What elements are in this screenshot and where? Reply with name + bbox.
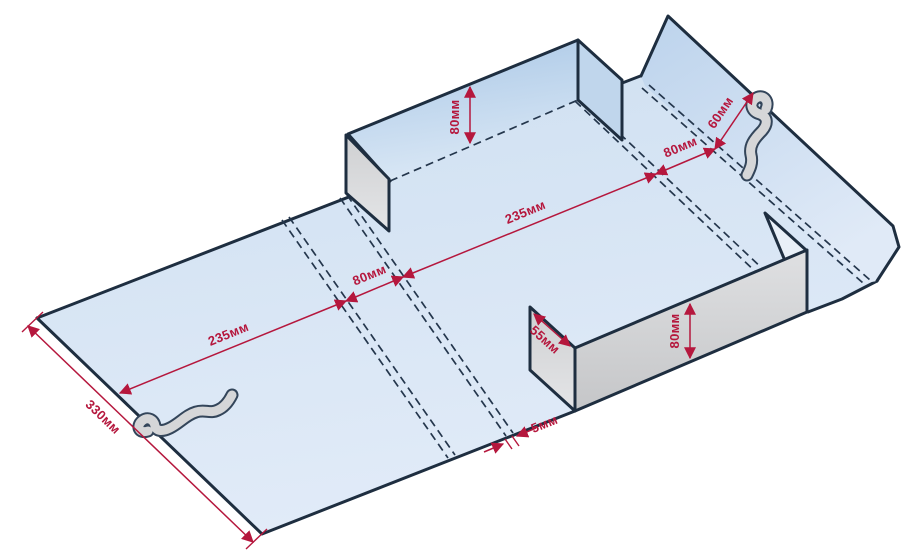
dim-label-sheet-width: 330мм <box>83 397 124 437</box>
dim-label-back-wall-height: 80мм <box>447 100 462 135</box>
dieline-canvas: 235мм 80мм 235мм 80мм 60мм 330мм 80мм <box>0 0 920 558</box>
dim-label-front-wall-height: 80мм <box>667 314 682 349</box>
dieline-diagram: 235мм 80мм 235мм 80мм 60мм 330мм 80мм <box>0 0 920 558</box>
